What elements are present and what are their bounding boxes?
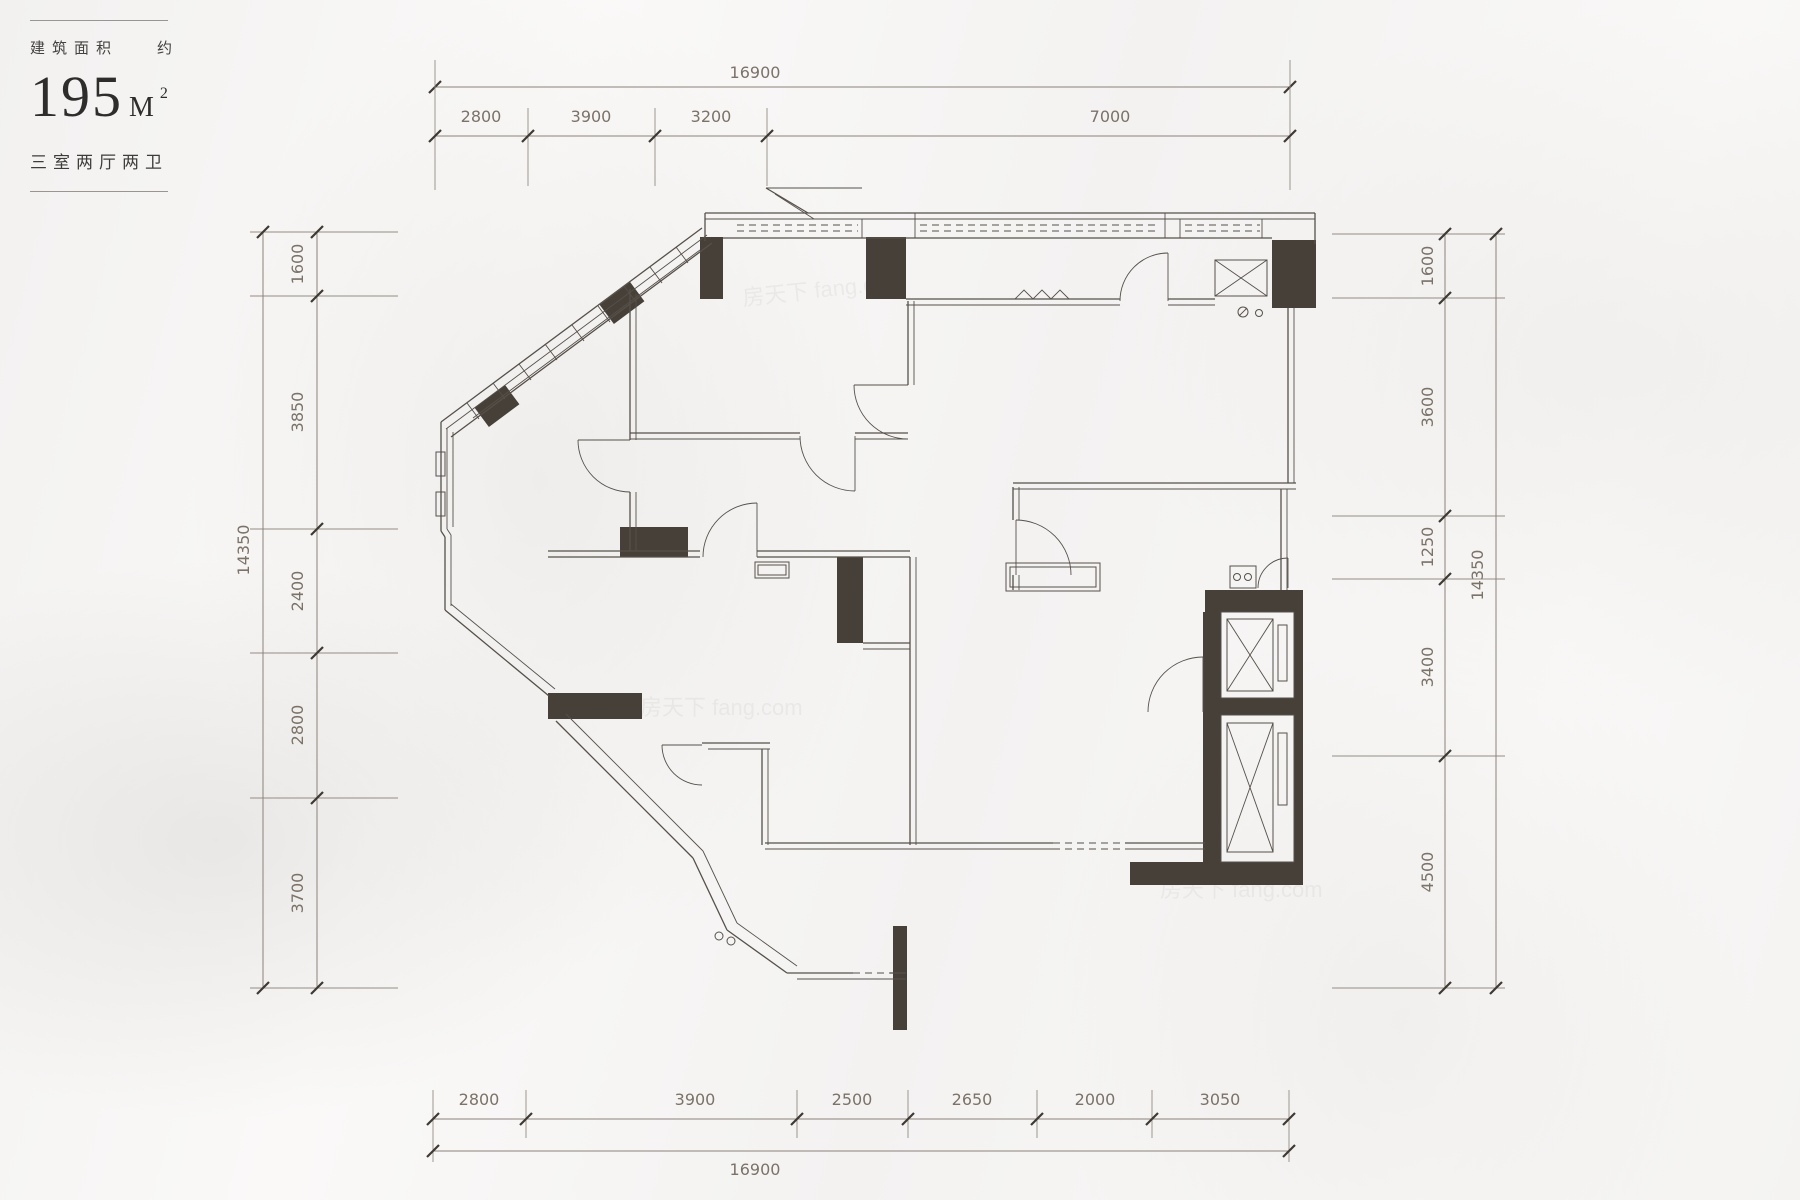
svg-text:7000: 7000: [1090, 107, 1131, 126]
cabinet: [755, 562, 789, 578]
svg-text:14350: 14350: [234, 525, 253, 576]
fixture-icon: [727, 937, 735, 945]
fixture-icon: [715, 932, 723, 940]
svg-text:4500: 4500: [1418, 852, 1437, 893]
counter-detail: [1015, 290, 1069, 299]
elevator-door: [1278, 733, 1287, 805]
svg-text:2500: 2500: [832, 1090, 873, 1109]
walls-layer: [436, 188, 1316, 1030]
door-arc: [1120, 253, 1168, 301]
svg-text:2800: 2800: [459, 1090, 500, 1109]
svg-text:3900: 3900: [675, 1090, 716, 1109]
svg-text:1600: 1600: [1418, 246, 1437, 287]
svg-text:2800: 2800: [288, 705, 307, 746]
fixture-icon: [1234, 574, 1241, 581]
door-arc: [800, 436, 855, 491]
svg-text:1600: 1600: [288, 244, 307, 285]
right-bedroom-walls: [1013, 483, 1296, 590]
svg-text:3200: 3200: [691, 107, 732, 126]
wall-fills: [475, 237, 1316, 1030]
elevators: [1221, 612, 1294, 862]
door-arc: [703, 503, 757, 557]
svg-text:3050: 3050: [1200, 1090, 1241, 1109]
floor-plan-svg: 1690028003900320070002800390025002650200…: [0, 0, 1800, 1200]
svg-text:16900: 16900: [730, 63, 781, 82]
door-arc: [854, 385, 908, 439]
svg-text:14350: 14350: [1468, 550, 1487, 601]
door-arc: [662, 745, 702, 785]
bottom-wall: [765, 843, 1205, 849]
svg-text:2400: 2400: [288, 571, 307, 612]
svg-text:2000: 2000: [1075, 1090, 1116, 1109]
stove-icon: [1256, 310, 1263, 317]
elevator-door: [1278, 625, 1287, 681]
svg-text:1250: 1250: [1418, 527, 1437, 568]
svg-text:2800: 2800: [461, 107, 502, 126]
balcony-band: [705, 188, 1315, 244]
svg-text:3900: 3900: [571, 107, 612, 126]
interior-partitions: [548, 289, 1100, 845]
lower-left-walls: [556, 714, 906, 979]
door-arc: [578, 440, 630, 492]
svg-text:3600: 3600: [1418, 387, 1437, 428]
door-arc: [1258, 558, 1288, 588]
fixture-icon: [1245, 574, 1252, 581]
svg-text:3700: 3700: [288, 873, 307, 914]
svg-text:16900: 16900: [730, 1160, 781, 1179]
svg-text:3400: 3400: [1418, 647, 1437, 688]
entry-door-arc: [1148, 657, 1203, 712]
left-tip-wall: [436, 422, 555, 696]
kitchen: [906, 253, 1267, 317]
svg-text:3850: 3850: [288, 392, 307, 433]
svg-text:2650: 2650: [952, 1090, 993, 1109]
